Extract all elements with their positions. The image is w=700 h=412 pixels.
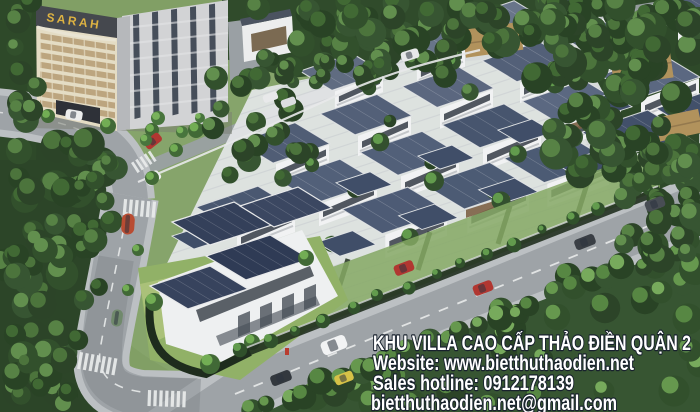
svg-text:bietthuthaodien.net@gmail.com: bietthuthaodien.net@gmail.com <box>371 392 617 412</box>
